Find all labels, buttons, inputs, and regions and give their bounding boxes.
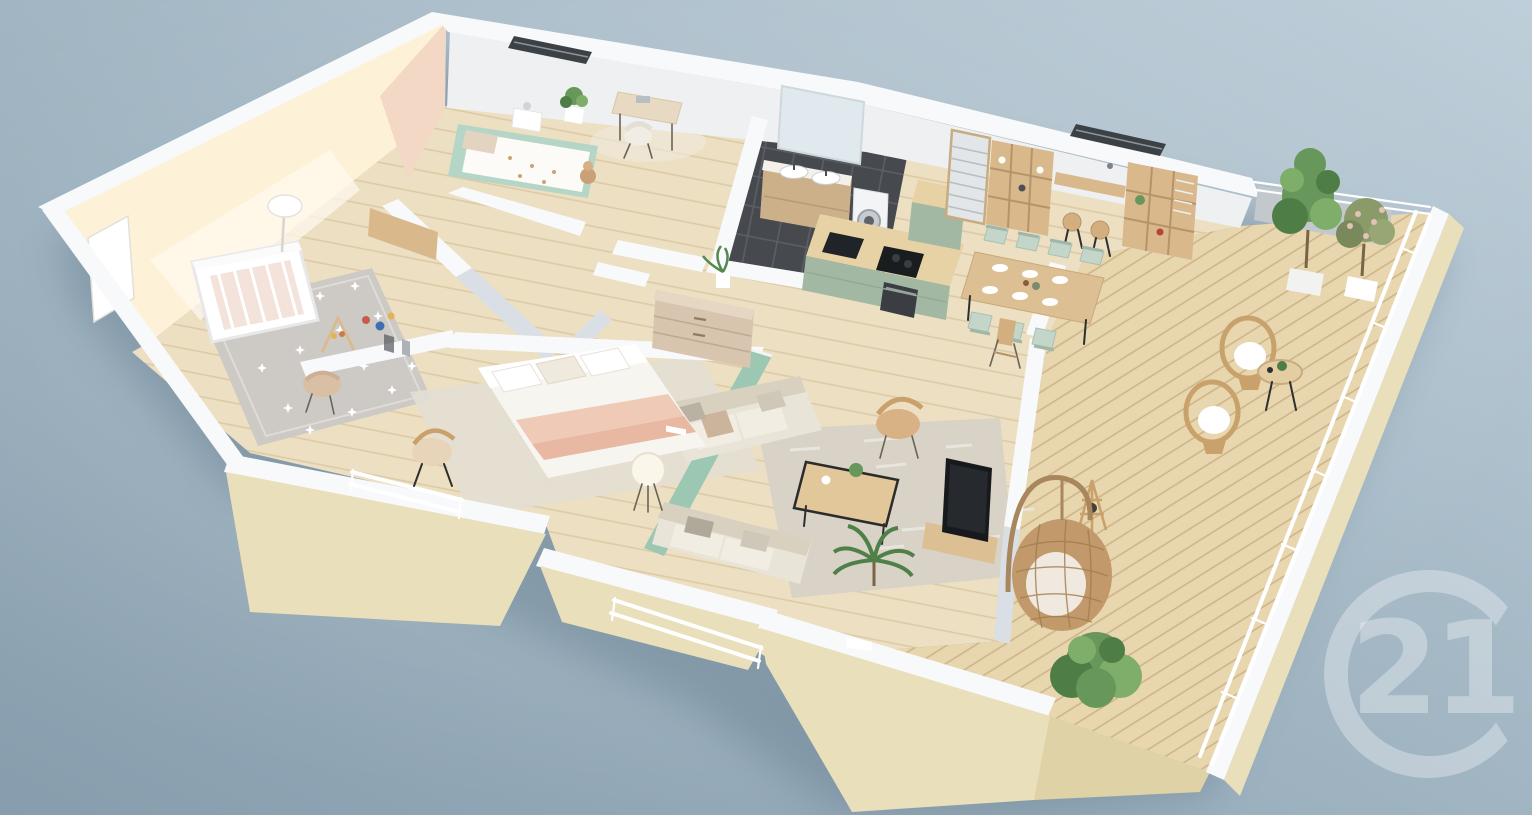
teddy-bear-head [583, 161, 593, 171]
shelving-open-wood [986, 140, 1054, 236]
floor-plan-render: 3D isometric cutaway floor plan render o… [0, 0, 1532, 815]
shelf-item [1157, 229, 1164, 236]
shelving-louver-left [946, 130, 990, 224]
cup [822, 476, 831, 485]
watermark-number: 21 [1350, 595, 1516, 744]
master-floor-lamp [631, 453, 665, 512]
table-plant [849, 463, 863, 477]
shelf-plant [1135, 195, 1145, 205]
floor-plan-svg: 3D isometric cutaway floor plan render o… [0, 0, 1532, 815]
shelving-right [1122, 162, 1198, 260]
